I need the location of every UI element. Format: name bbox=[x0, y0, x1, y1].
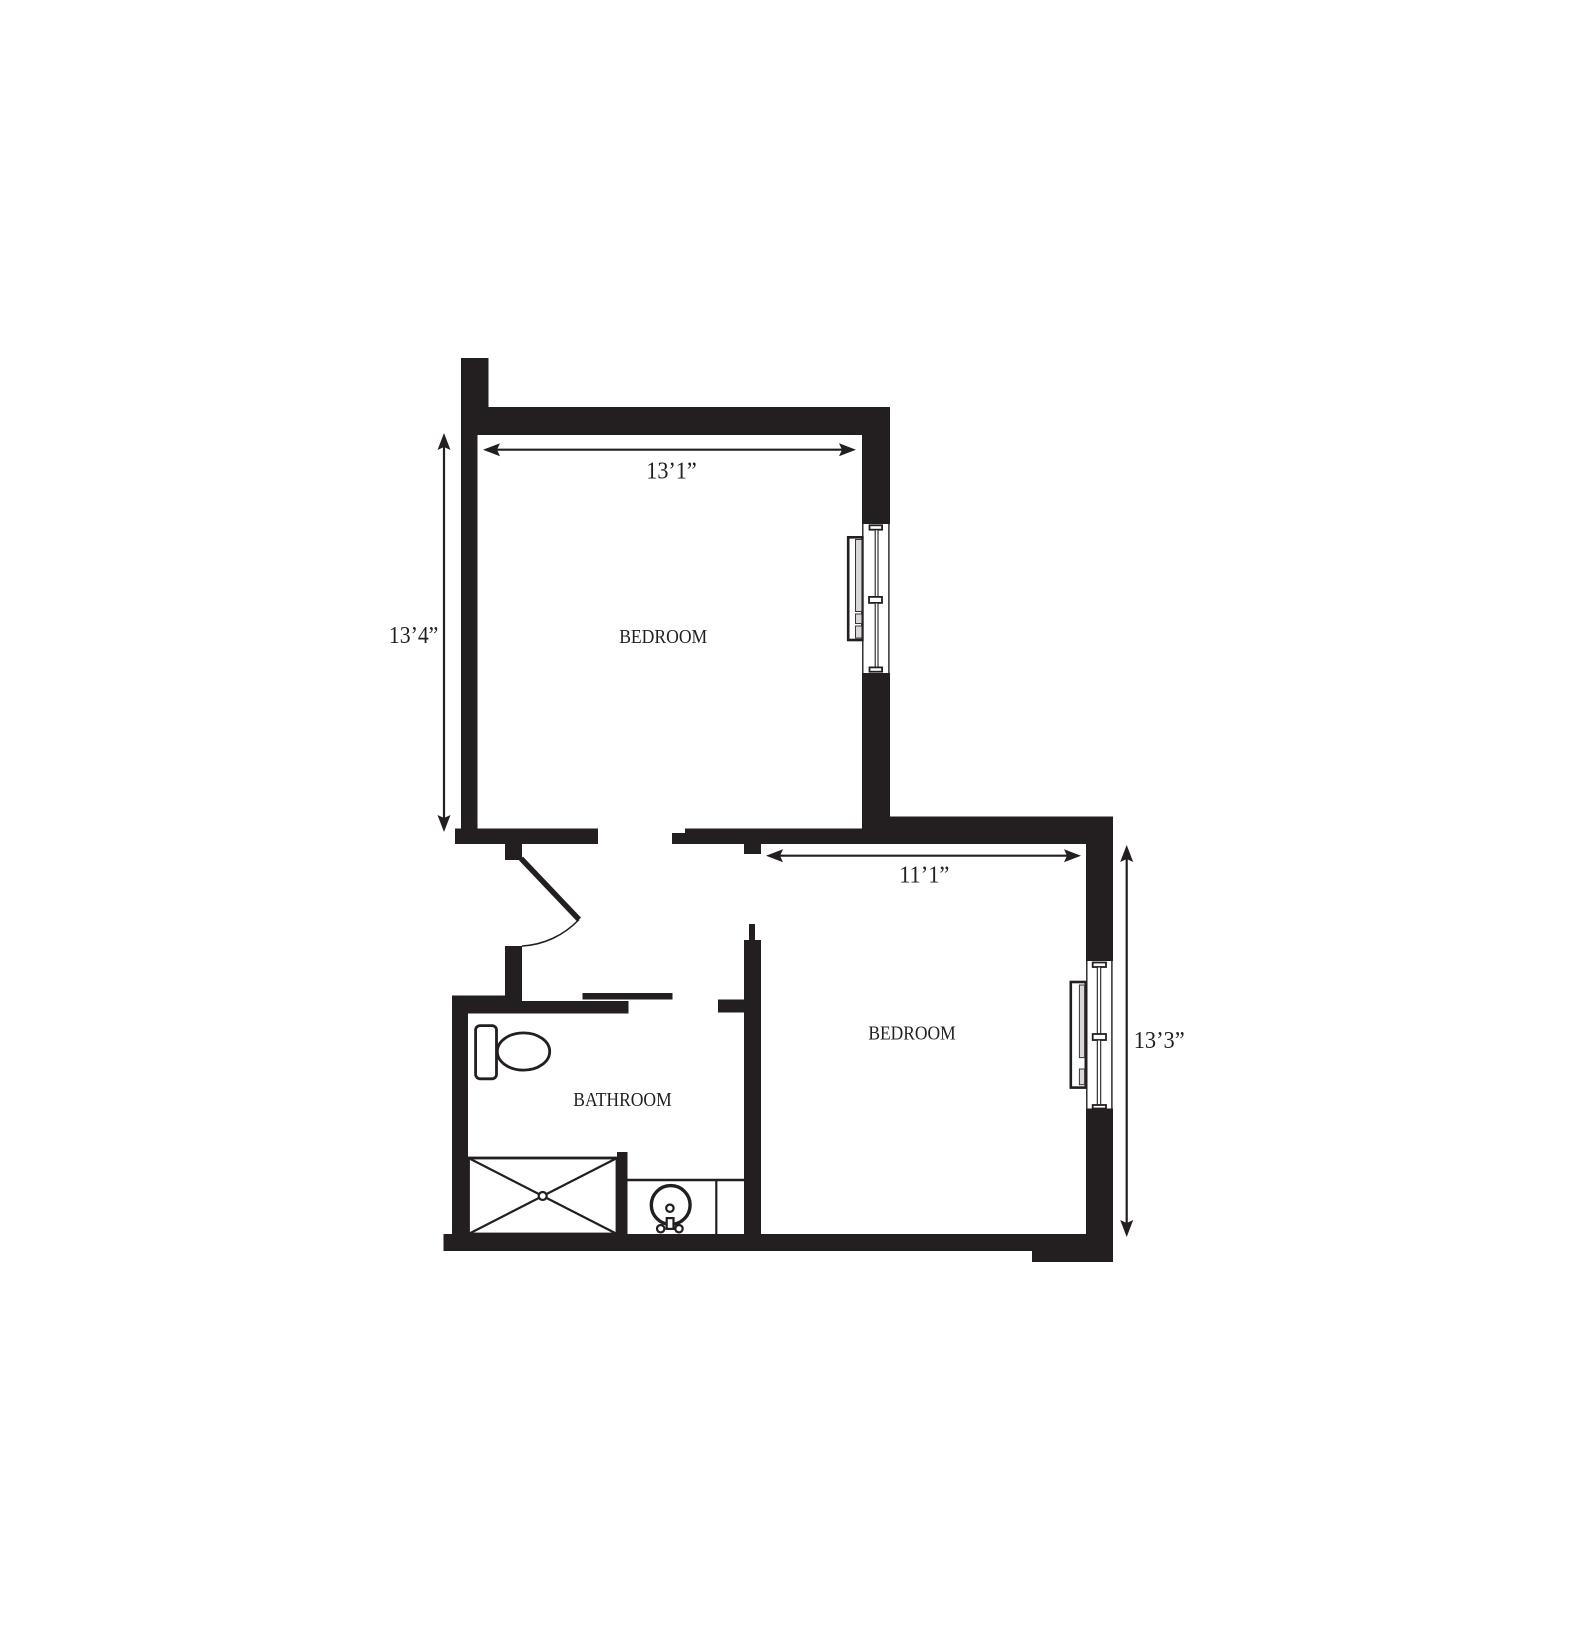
svg-text:11’1”: 11’1” bbox=[899, 862, 949, 888]
svg-text:13’1”: 13’1” bbox=[646, 459, 697, 485]
svg-text:BEDROOM: BEDROOM bbox=[619, 626, 707, 648]
svg-text:BATHROOM: BATHROOM bbox=[573, 1089, 672, 1111]
svg-text:BEDROOM: BEDROOM bbox=[868, 1023, 955, 1045]
svg-text:13’3”: 13’3” bbox=[1134, 1028, 1185, 1054]
svg-text:13’4”: 13’4” bbox=[389, 623, 439, 649]
